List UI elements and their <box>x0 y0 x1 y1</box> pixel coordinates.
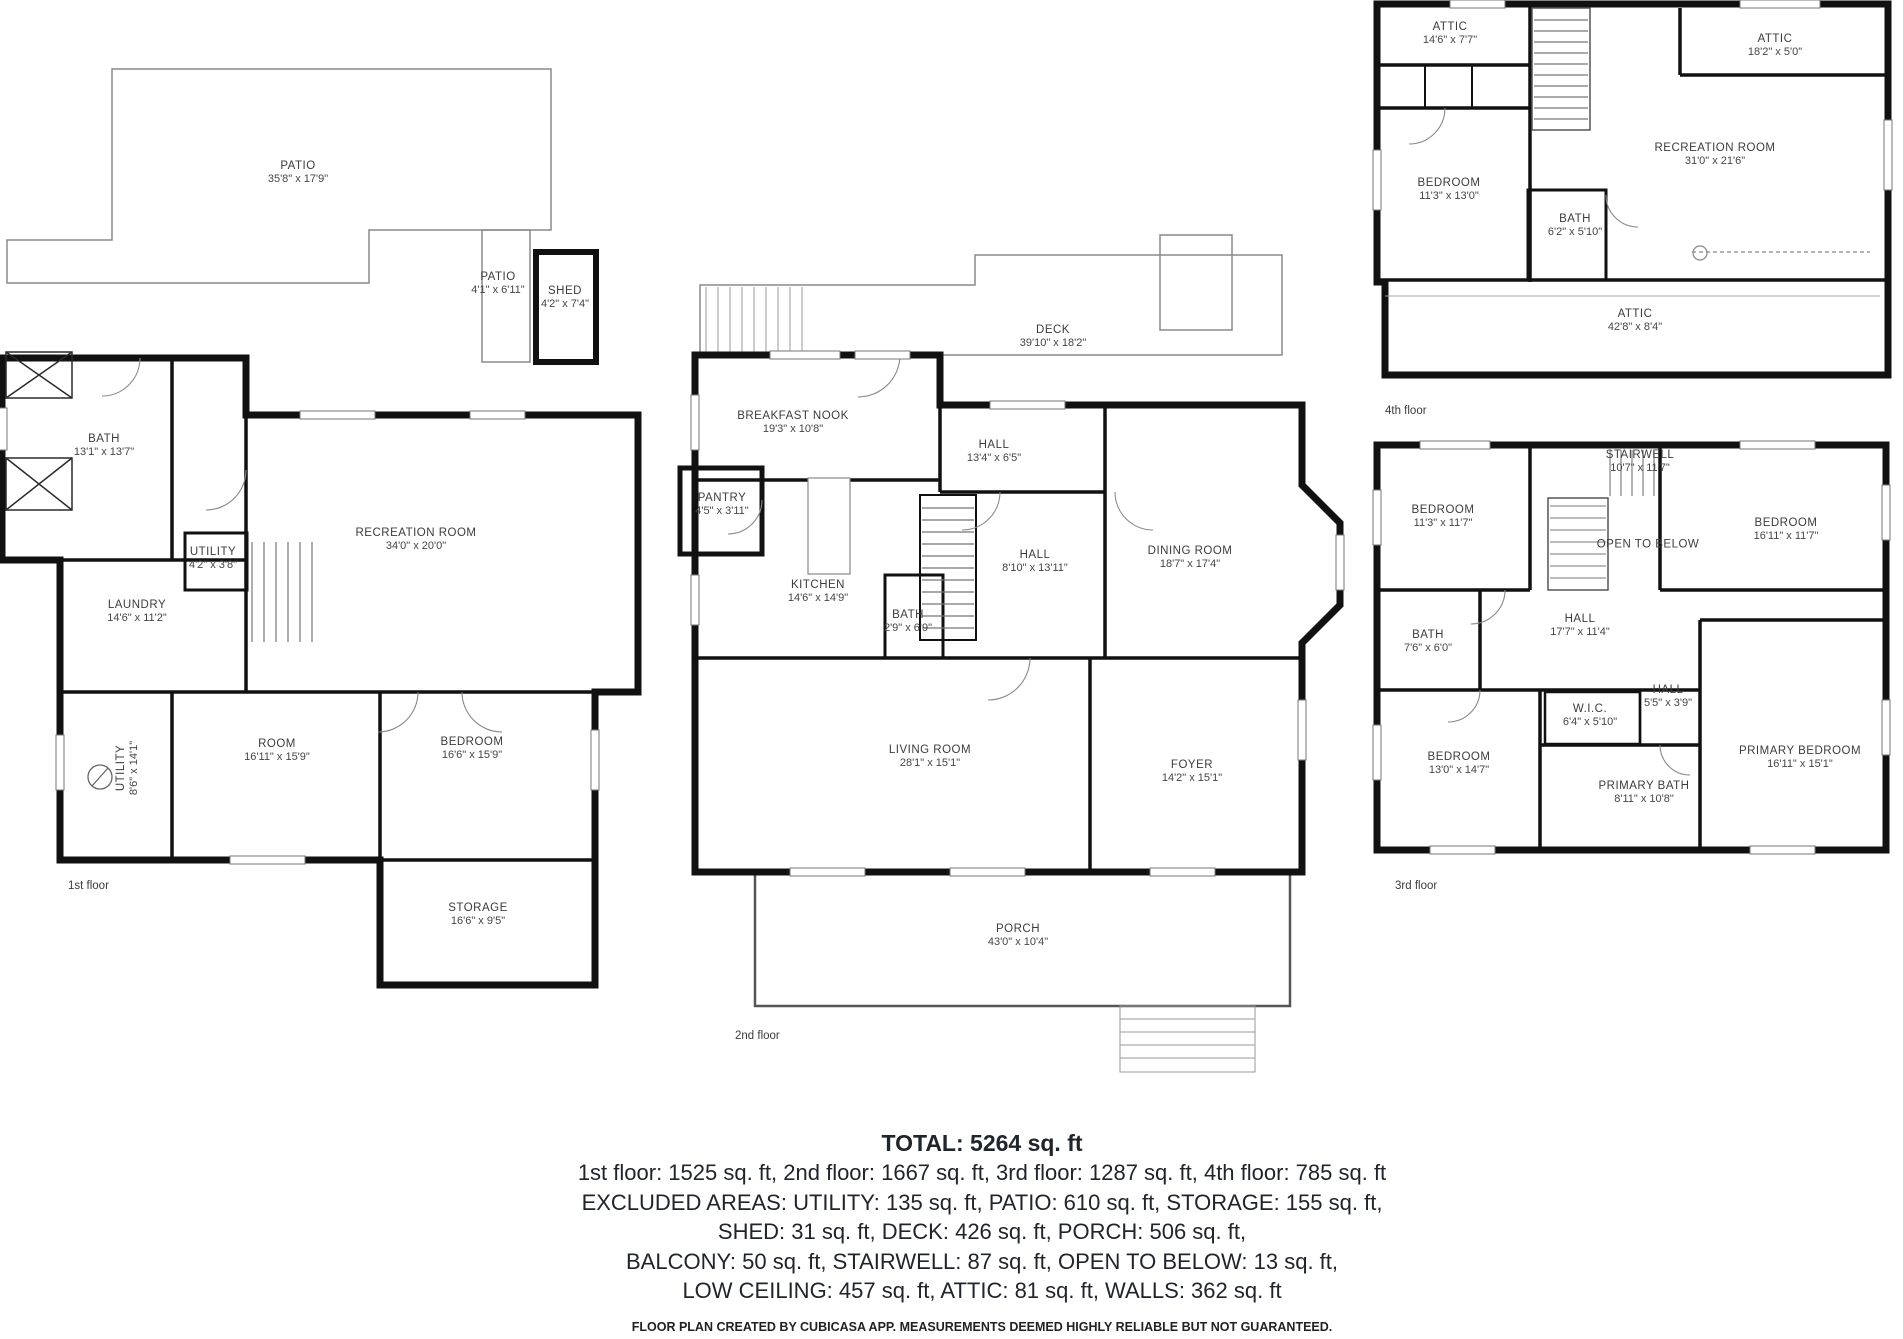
room-label-bedroom-4f: BEDROOM11'3" x 13'0" <box>1418 177 1481 203</box>
room-label-bath-2f: BATH2'9" x 6'9" <box>884 609 932 635</box>
room-label-laundry: LAUNDRY14'6" x 11'2" <box>107 599 167 625</box>
stairs-icon <box>252 542 312 642</box>
room-label-foyer: FOYER14'2" x 15'1" <box>1162 759 1222 785</box>
floor-areas-line: 1st floor: 1525 sq. ft, 2nd floor: 1667 … <box>578 1158 1386 1188</box>
room-label-breakfast-nook: BREAKFAST NOOK19'3" x 10'8" <box>737 410 849 436</box>
room-label-attic2-4f: ATTIC18'2" x 5'0" <box>1748 33 1802 59</box>
room-label-dining-room: DINING ROOM18'7" x 17'4" <box>1148 545 1233 571</box>
stairs-icon <box>1532 8 1590 130</box>
room-label-utility-left: UTILITY8'6" x 14'1" <box>115 741 141 795</box>
room-label-wic: W.I.C.6'4" x 5'10" <box>1563 703 1617 729</box>
room-label-bedroom2-3f: BEDROOM16'11" x 11'7" <box>1754 517 1819 543</box>
caption-4th-floor: 4th floor <box>1385 405 1427 417</box>
footer-disclaimer: FLOOR PLAN CREATED BY CUBICASA APP. MEAS… <box>632 1320 1333 1334</box>
porch-steps-icon <box>1120 1006 1255 1072</box>
room-label-attic3-4f: ATTIC42'8" x 8'4" <box>1608 308 1662 334</box>
room-label-open-to-below: OPEN TO BELOW <box>1597 539 1700 552</box>
room-label-deck: DECK39'10" x 18'2" <box>1020 324 1086 350</box>
interior-walls <box>695 405 1302 872</box>
total-area-text: TOTAL: 5264 sq. ft <box>578 1128 1386 1158</box>
room-label-bedroom-1f: BEDROOM16'6" x 15'9" <box>441 736 504 762</box>
room-label-storage: STORAGE16'6" x 9'5" <box>448 902 508 928</box>
room-label-kitchen: KITCHEN14'6" x 14'9" <box>788 579 848 605</box>
room-label-patio-small: PATIO4'1" x 6'11" <box>471 271 524 297</box>
room-label-bedroom3-3f: BEDROOM13'0" x 14'7" <box>1428 751 1491 777</box>
bench-icon <box>1692 246 1870 260</box>
room-label-utility-small: UTILITY4'2" x 3'8" <box>189 546 237 572</box>
room-label-hall-3f: HALL17'7" x 11'4" <box>1550 613 1610 639</box>
room-label-recreation-4f: RECREATION ROOM31'0" x 21'6" <box>1654 142 1775 168</box>
area-summary: TOTAL: 5264 sq. ft 1st floor: 1525 sq. f… <box>578 1128 1386 1306</box>
room-label-bedroom1-3f: BEDROOM11'3" x 11'7" <box>1412 504 1475 530</box>
room-label-pantry: PANTRY4'5" x 3'11" <box>695 492 748 518</box>
floorplan-canvas: PATIO35'8" x 17'9" PATIO4'1" x 6'11" SHE… <box>0 0 1903 1339</box>
room-label-shed: SHED4'2" x 7'4" <box>541 285 589 311</box>
room-label-patio: PATIO35'8" x 17'9" <box>268 160 328 186</box>
closet-icon <box>6 352 72 510</box>
room-label-hall-small-3f: HALL5'5" x 3'9" <box>1644 684 1692 710</box>
excluded-areas-line-1: EXCLUDED AREAS: UTILITY: 135 sq. ft, PAT… <box>578 1188 1386 1218</box>
room-label-living-room: LIVING ROOM28'1" x 15'1" <box>889 744 971 770</box>
caption-2nd-floor: 2nd floor <box>735 1030 780 1042</box>
excluded-areas-line-3: BALCONY: 50 sq. ft, STAIRWELL: 87 sq. ft… <box>578 1247 1386 1277</box>
room-label-hall-lower-2f: HALL8'10" x 13'11" <box>1002 549 1068 575</box>
room-label-primary-bedroom: PRIMARY BEDROOM16'11" x 15'1" <box>1739 745 1861 771</box>
room-label-stairwell: STAIRWELL10'7" x 11'7" <box>1606 449 1675 475</box>
room-label-bath-4f: BATH6'2" x 5'10" <box>1548 213 1602 239</box>
door-arc-icon <box>1409 108 1638 227</box>
room-label-primary-bath: PRIMARY BATH8'11" x 10'8" <box>1599 780 1690 806</box>
room-label-recreation-1f: RECREATION ROOM34'0" x 20'0" <box>355 527 476 553</box>
room-label-porch: PORCH43'0" x 10'4" <box>988 923 1048 949</box>
kitchen-island-icon <box>808 478 850 574</box>
closet-dividers <box>1425 65 1472 108</box>
deck-outline <box>700 235 1282 355</box>
deck-stairs-icon <box>706 287 802 353</box>
electrical-symbol-icon <box>88 765 112 789</box>
patio-outline <box>7 69 551 362</box>
caption-3rd-floor: 3rd floor <box>1395 880 1437 892</box>
first-floor-plan <box>0 69 638 985</box>
room-label-bath-1f: BATH13'1" x 13'7" <box>74 433 134 459</box>
room-label-room: ROOM16'11" x 15'9" <box>244 738 310 764</box>
caption-1st-floor: 1st floor <box>68 880 109 892</box>
room-label-bath-3f: BATH7'6" x 6'0" <box>1404 629 1452 655</box>
excluded-areas-line-2: SHED: 31 sq. ft, DECK: 426 sq. ft, PORCH… <box>578 1217 1386 1247</box>
excluded-areas-line-4: LOW CEILING: 457 sq. ft, ATTIC: 81 sq. f… <box>578 1276 1386 1306</box>
room-label-attic1-4f: ATTIC14'6" x 7'7" <box>1423 21 1477 47</box>
room-label-hall-upper-2f: HALL13'4" x 6'5" <box>967 439 1021 465</box>
